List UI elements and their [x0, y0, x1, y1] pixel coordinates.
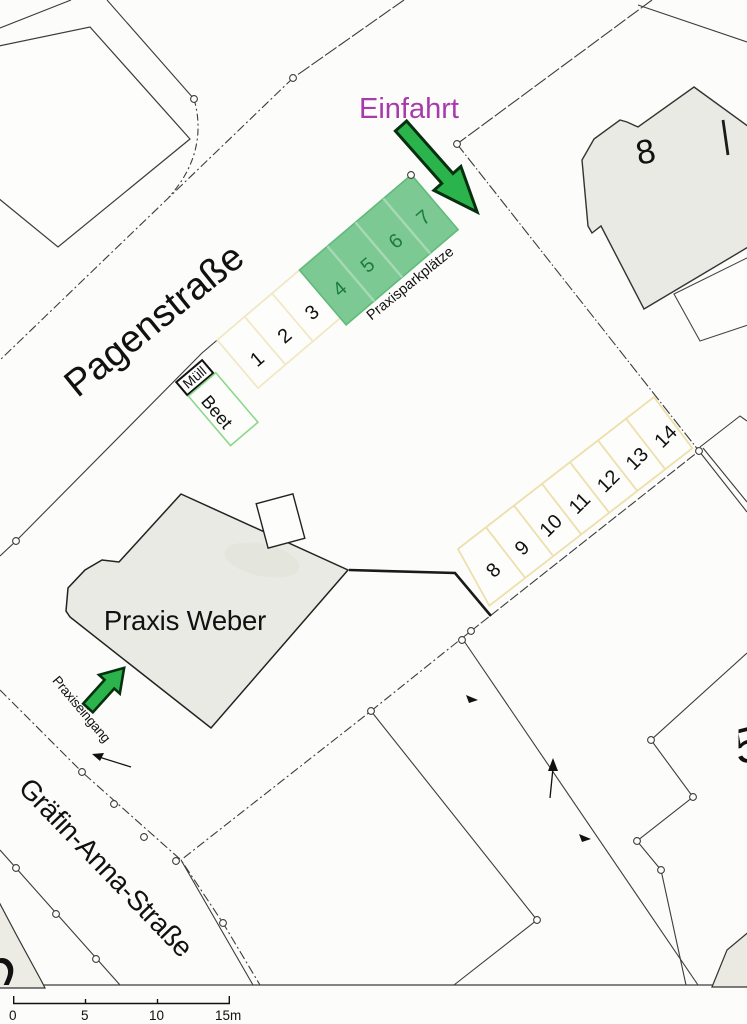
- svg-text:Praxis Weber: Praxis Weber: [104, 605, 266, 636]
- svg-text:15m: 15m: [215, 1008, 241, 1023]
- svg-text:Einfahrt: Einfahrt: [359, 93, 459, 125]
- svg-text:0: 0: [9, 1008, 17, 1023]
- svg-text:10: 10: [149, 1008, 164, 1023]
- svg-text:5: 5: [81, 1008, 89, 1023]
